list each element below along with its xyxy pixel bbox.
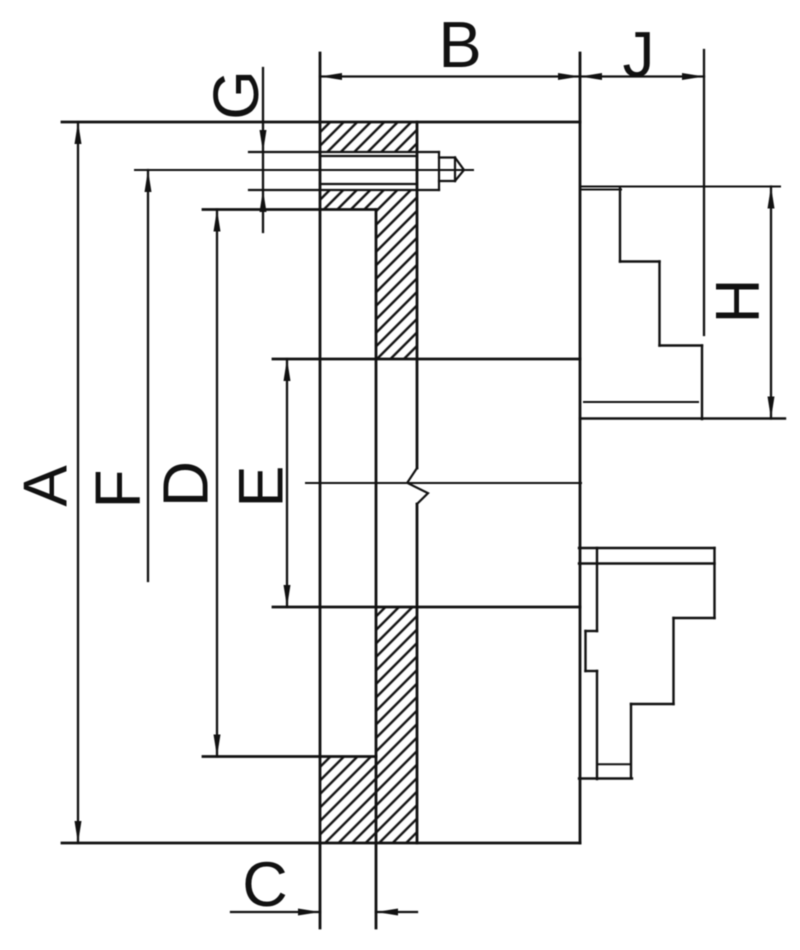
svg-text:D: D — [150, 461, 222, 507]
svg-text:G: G — [200, 70, 272, 120]
svg-text:J: J — [623, 19, 655, 91]
svg-text:B: B — [438, 8, 481, 81]
svg-text:E: E — [227, 465, 297, 507]
svg-text:F: F — [82, 469, 154, 508]
svg-text:H: H — [704, 279, 773, 324]
svg-text:C: C — [242, 850, 288, 920]
svg-text:A: A — [12, 465, 81, 507]
